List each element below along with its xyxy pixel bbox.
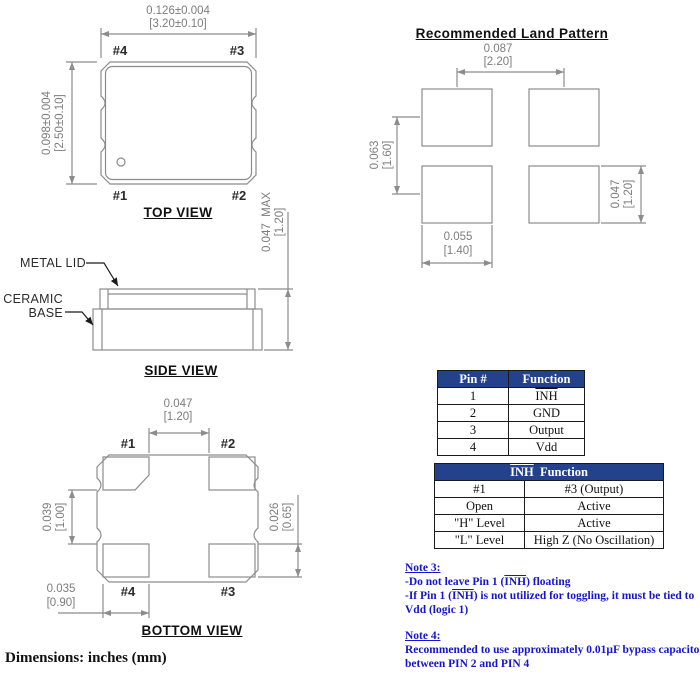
ceramic-base-label: CERAMIC BASE <box>0 292 63 320</box>
note-3-line2-pre: -If Pin 1 ( <box>405 590 452 602</box>
land-pattern-title: Recommended Land Pattern <box>412 26 612 41</box>
side-view-height-dim: 0.047 MAX [1.20] <box>260 167 288 277</box>
bottom-view-pin4-label: #4 <box>111 584 145 599</box>
top-view-pin4-label: #4 <box>103 43 137 58</box>
land-pattern-vpitch-mm: [1.60] <box>382 110 395 200</box>
pin-table-cell: GND <box>509 405 585 422</box>
bottom-view-pin2-label: #2 <box>211 436 245 451</box>
side-view-height-dim-mm: [1.20] <box>274 167 287 277</box>
note-4: Note 4: Recommended to use approximately… <box>405 629 700 671</box>
top-view-pin1-label: #1 <box>103 188 137 203</box>
note-3-line2: -If Pin 1 (INH) is not utilized for togg… <box>405 589 700 617</box>
metal-lid-label: METAL LID <box>20 256 88 270</box>
land-pattern-vpitch-inches: 0.063 <box>369 110 382 200</box>
note-3-line1-pre: -Do not leave Pin 1 ( <box>405 576 504 588</box>
bottom-view-pad-gap-mm: [1.20] <box>148 411 208 424</box>
land-pattern-vpitch-dim: 0.063 [1.60] <box>368 110 396 200</box>
inh-table-colhead-pin3: #3 (Output) <box>525 481 664 498</box>
pin-table-cell: Vdd <box>509 439 585 456</box>
bottom-view-pin3-label: #3 <box>211 584 245 599</box>
inh-table-cell: Open <box>435 498 525 515</box>
land-pattern-hpitch-mm: [2.20] <box>468 56 528 69</box>
inh-table-colhead-pin1: #1 <box>435 481 525 498</box>
top-view-height-dim: 0.098±0.004 [2.50±0.10] <box>40 63 68 183</box>
bottom-view-title: BOTTOM VIEW <box>122 623 262 638</box>
inh-table-header: INH Function <box>435 464 664 481</box>
inh-table-cell: Active <box>525 498 664 515</box>
land-pattern-hpitch-inches: 0.087 <box>468 43 528 56</box>
land-pattern-padheight-inches: 0.047 <box>610 149 623 239</box>
note-3-line1: -Do not leave Pin 1 (INH) floating <box>405 575 700 589</box>
top-view-pin2-label: #2 <box>222 188 256 203</box>
pin-table-cell: 4 <box>438 439 509 456</box>
bottom-view-drawing <box>58 428 302 618</box>
side-view-title: SIDE VIEW <box>121 363 241 378</box>
top-view-height-dim-inches: 0.098±0.004 <box>41 63 54 183</box>
pin-table-cell: INH <box>509 388 585 405</box>
bottom-view-pad-height-mm: [0.65] <box>282 472 295 562</box>
pin-table-cell: 3 <box>438 422 509 439</box>
bottom-view-left-gap-inches: 0.039 <box>42 472 55 562</box>
bottom-view-pad-height-inches: 0.026 <box>269 472 282 562</box>
top-view-width-dim-inches: 0.126±0.004 <box>108 5 248 18</box>
ceramic-label-line2: BASE <box>0 306 63 320</box>
bottom-view-pad-gap-inches: 0.047 <box>148 398 208 411</box>
top-view-height-dim-mm: [2.50±0.10] <box>54 63 67 183</box>
bottom-view-pad-width-mm: [0.90] <box>31 597 91 610</box>
bottom-view-pin1-label: #1 <box>111 436 145 451</box>
bottom-view-left-gap-mm: [1.00] <box>55 472 68 562</box>
inh-table-cell: "L" Level <box>435 532 525 549</box>
note-3-title: Note 3: <box>405 561 700 575</box>
note-3-line1-post: ) floating <box>526 576 570 588</box>
inh-table-cell: Active <box>525 515 664 532</box>
datasheet-page: 0.126±0.004 [3.20±0.10] 0.098±0.004 [2.5… <box>0 0 700 674</box>
pin-table-cell: Output <box>509 422 585 439</box>
top-view-width-dim-mm: [3.20±0.10] <box>108 18 248 31</box>
note-4-body: Recommended to use approximately 0.01µF … <box>405 643 700 671</box>
top-view-title: TOP VIEW <box>118 205 238 220</box>
inh-table-cell: High Z (No Oscillation) <box>525 532 664 549</box>
inh-overline-text: INH <box>510 465 534 479</box>
dimensions-units-label: Dimensions: inches (mm) <box>5 650 167 667</box>
land-pattern-padwidth-inches: 0.055 <box>428 231 488 244</box>
land-pattern-padwidth-mm: [1.40] <box>428 245 488 258</box>
bottom-view-pad-height-dim: 0.026 [0.65] <box>268 472 296 562</box>
inh-overline-text: INH <box>535 389 557 403</box>
pin-table-cell: 2 <box>438 405 509 422</box>
ceramic-label-line1: CERAMIC <box>0 292 63 306</box>
inh-function-table: INH Function #1 #3 (Output) Open Active … <box>434 463 664 549</box>
inh-overline-text: INH <box>504 576 526 588</box>
inh-header-rest: Function <box>534 465 588 479</box>
land-pattern-padheight-dim: 0.047 [1.20] <box>609 149 637 239</box>
bottom-view-pad-width-inches: 0.035 <box>31 583 91 596</box>
bottom-view-left-gap-dim: 0.039 [1.00] <box>41 472 69 562</box>
inh-overline-text: INH <box>452 590 474 602</box>
inh-table-cell: "H" Level <box>435 515 525 532</box>
top-view-pin3-label: #3 <box>220 43 254 58</box>
land-pattern-padheight-mm: [1.20] <box>623 149 636 239</box>
pin-function-table: Pin # Function 1 INH 2 GND 3 Output 4 Vd… <box>437 370 585 456</box>
side-view-height-dim-inches: 0.047 MAX <box>261 167 274 277</box>
note-4-title: Note 4: <box>405 629 700 643</box>
note-3: Note 3: -Do not leave Pin 1 (INH) floati… <box>405 561 700 617</box>
pin-table-cell: 1 <box>438 388 509 405</box>
pin-table-header-pin: Pin # <box>438 371 509 388</box>
pin-table-header-function: Function <box>509 371 585 388</box>
